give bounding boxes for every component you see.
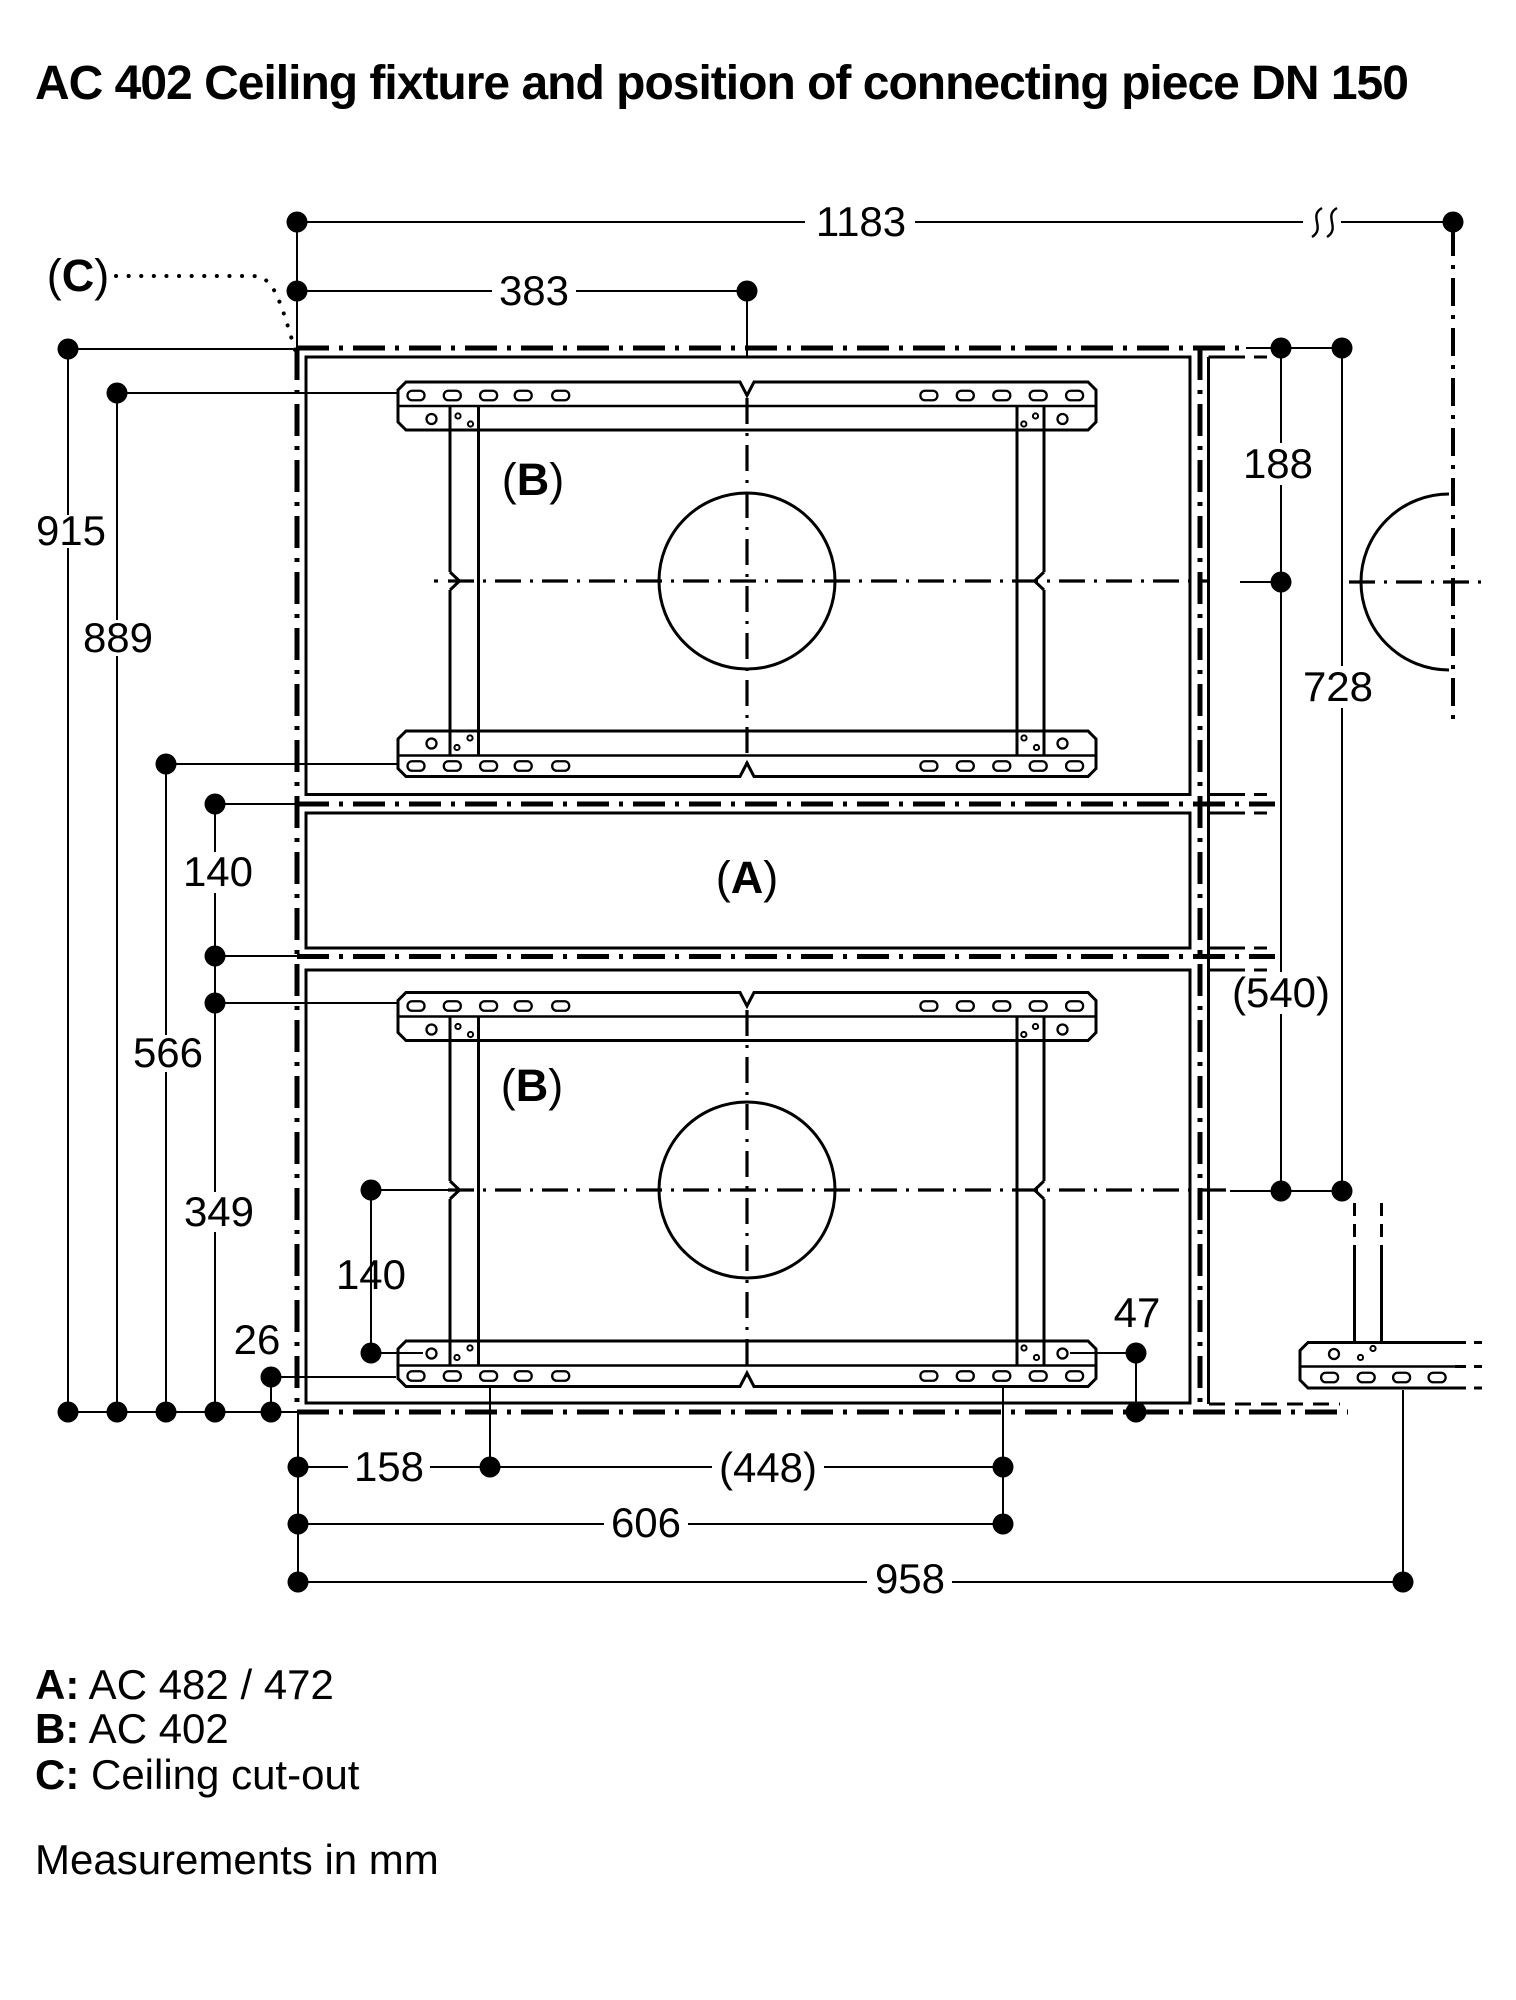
svg-text:566: 566 — [133, 1029, 203, 1076]
svg-text:915: 915 — [36, 507, 106, 554]
svg-text:1183: 1183 — [816, 198, 906, 245]
svg-text:B: AC 402: B: AC 402 — [35, 1705, 229, 1752]
svg-text:(540): (540) — [1232, 969, 1330, 1016]
svg-text:140: 140 — [336, 1251, 406, 1298]
svg-text:958: 958 — [875, 1555, 945, 1602]
svg-text:188: 188 — [1243, 440, 1313, 487]
svg-text:26: 26 — [234, 1316, 281, 1363]
svg-text:(A): (A) — [716, 852, 779, 903]
svg-text:349: 349 — [184, 1188, 254, 1235]
svg-text:383: 383 — [499, 267, 569, 314]
svg-text:158: 158 — [354, 1443, 424, 1490]
svg-text:Measurements in mm: Measurements in mm — [35, 1836, 439, 1883]
svg-text:(448): (448) — [719, 1444, 817, 1491]
svg-text:606: 606 — [611, 1499, 681, 1546]
svg-text:889: 889 — [83, 614, 153, 661]
svg-text:47: 47 — [1114, 1289, 1161, 1336]
svg-text:728: 728 — [1303, 663, 1373, 710]
svg-text:A: AC 482 / 472: A: AC 482 / 472 — [35, 1661, 334, 1708]
svg-text:(B): (B) — [501, 1060, 564, 1111]
svg-text:AC 402 Ceiling fixture and pos: AC 402 Ceiling fixture and position of c… — [35, 57, 1408, 110]
svg-text:(B): (B) — [502, 454, 565, 505]
svg-text:(C): (C) — [47, 250, 110, 301]
svg-text:C: Ceiling cut-out: C: Ceiling cut-out — [35, 1751, 360, 1798]
svg-text:140: 140 — [183, 848, 253, 895]
